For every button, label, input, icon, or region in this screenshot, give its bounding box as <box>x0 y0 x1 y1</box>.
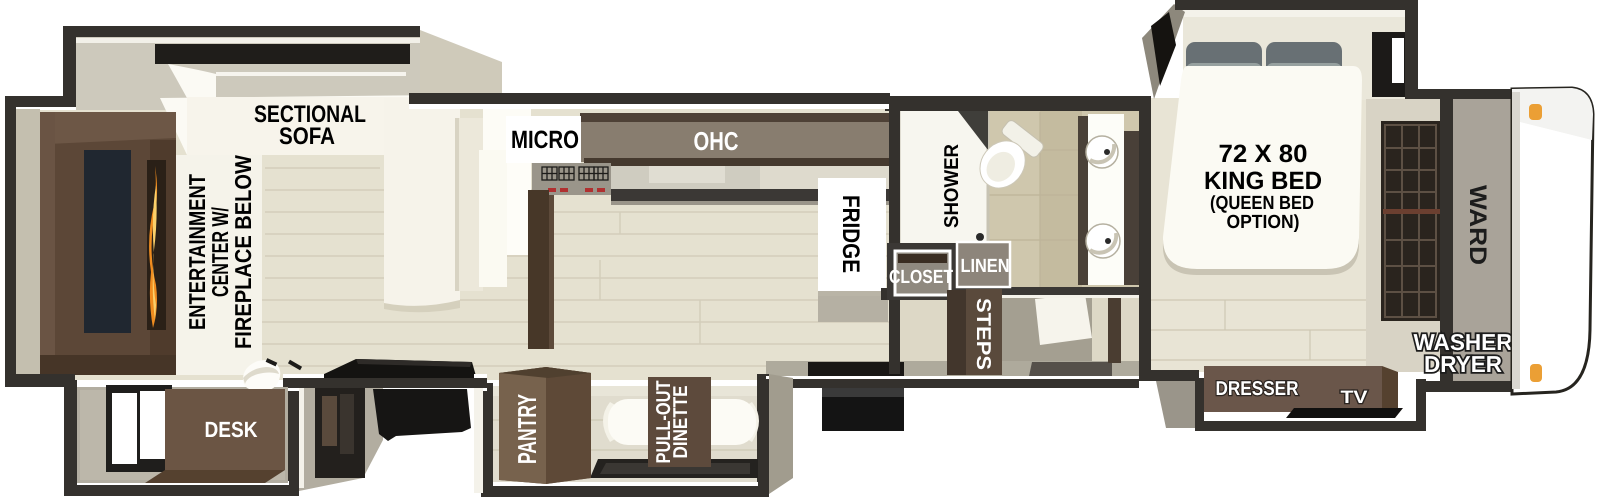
svg-text:FRIDGE: FRIDGE <box>837 195 864 273</box>
svg-text:WARD: WARD <box>1464 185 1491 265</box>
svg-text:TV: TV <box>1341 387 1368 407</box>
svg-text:OHC: OHC <box>694 126 739 156</box>
svg-text:CLOSET: CLOSET <box>889 267 953 288</box>
svg-text:DRYER: DRYER <box>1424 351 1502 377</box>
svg-text:FIREPLACE BELOW: FIREPLACE BELOW <box>230 155 256 349</box>
svg-text:LINEN: LINEN <box>961 256 1010 277</box>
svg-text:72 X 80: 72 X 80 <box>1219 140 1308 168</box>
svg-text:STEPS: STEPS <box>972 298 994 370</box>
svg-text:MICRO: MICRO <box>511 126 579 154</box>
svg-text:DRESSER: DRESSER <box>1216 378 1299 400</box>
svg-text:OPTION): OPTION) <box>1227 212 1300 233</box>
svg-text:DESK: DESK <box>205 417 258 442</box>
svg-text:KING BED: KING BED <box>1204 167 1322 195</box>
svg-text:DINETTE: DINETTE <box>670 386 692 459</box>
svg-text:SHOWER: SHOWER <box>941 143 963 228</box>
svg-text:SOFA: SOFA <box>279 123 335 150</box>
svg-text:(QUEEN BED: (QUEEN BED <box>1210 193 1314 214</box>
svg-text:PANTRY: PANTRY <box>512 394 542 464</box>
